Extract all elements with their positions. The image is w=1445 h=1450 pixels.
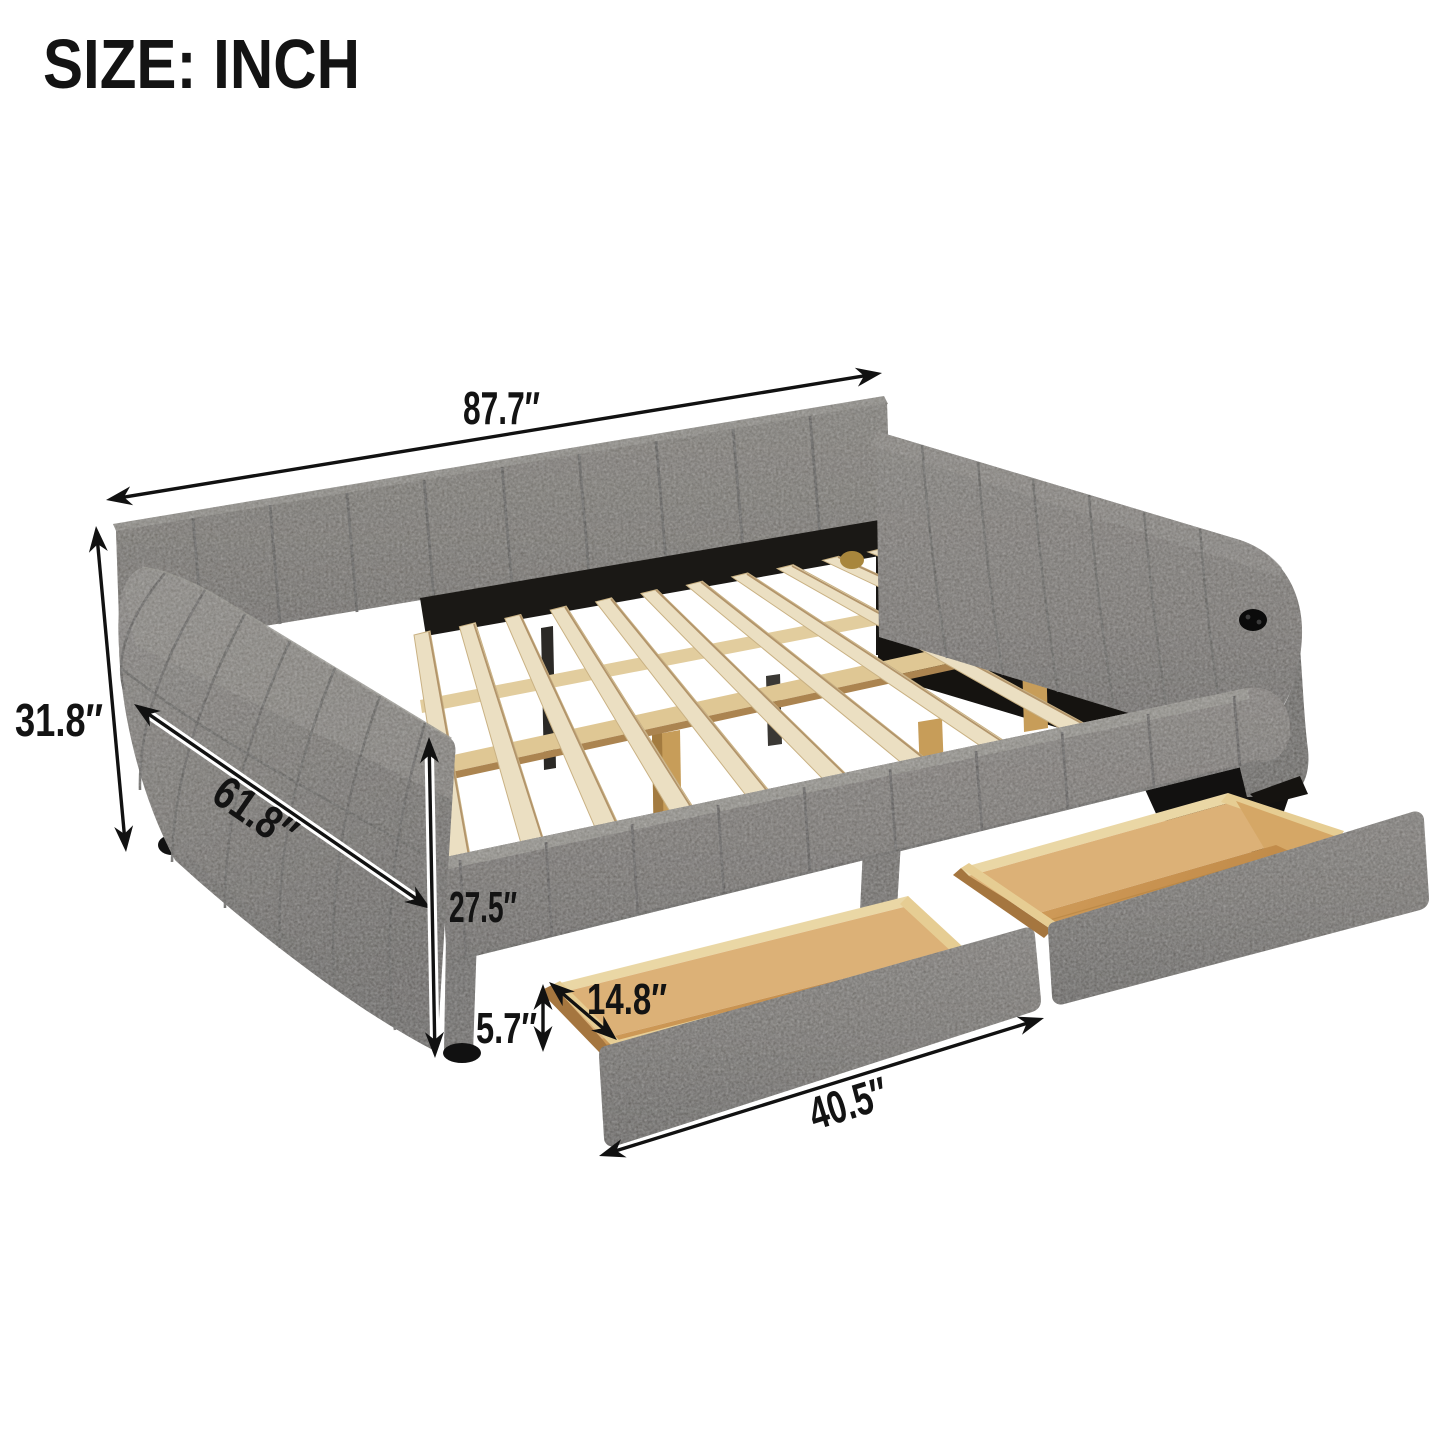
svg-text:27.5″: 27.5″ (449, 883, 517, 932)
svg-text:31.8″: 31.8″ (15, 694, 103, 746)
svg-text:87.7″: 87.7″ (463, 382, 540, 434)
svg-text:14.8″: 14.8″ (587, 975, 667, 1024)
svg-text:5.7″: 5.7″ (476, 1004, 537, 1053)
svg-text:SIZE: INCH: SIZE: INCH (43, 25, 360, 103)
